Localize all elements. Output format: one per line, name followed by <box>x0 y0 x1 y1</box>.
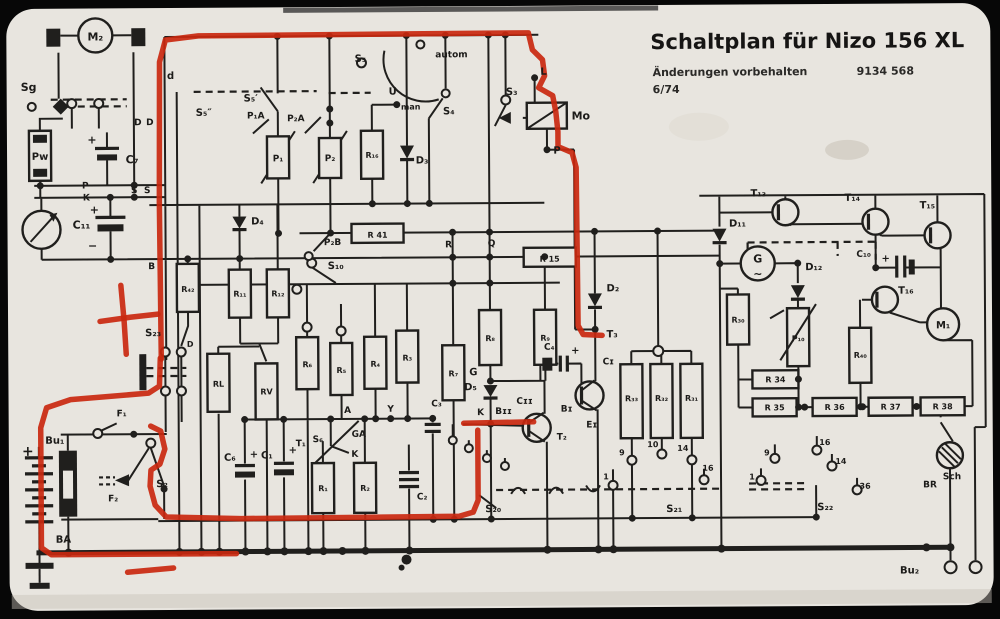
schematic-label: + <box>90 203 99 216</box>
schematic-label: R <box>445 240 452 250</box>
schematic-label: S <box>131 186 138 196</box>
schematic-label: S₆ <box>313 435 324 445</box>
schematic-label: BR <box>923 480 937 490</box>
schematic-label: F₁ <box>117 409 127 419</box>
schematic-label: S₁₀ <box>328 261 344 272</box>
schematic-label: R₄ <box>370 360 380 369</box>
schematic-label: R 36 <box>825 403 846 412</box>
schematic-label: R 35 <box>765 403 786 412</box>
scanned-schematic-photo: Schaltplan für Nizo 156 XL Änderungen vo… <box>0 0 1000 619</box>
schematic-label: C₁ <box>261 450 273 461</box>
schematic-label: F₂ <box>108 494 118 504</box>
schematic-label: RL <box>213 380 224 389</box>
schematic-label: R₃ <box>402 354 412 363</box>
schematic-label: C₇ <box>126 153 139 166</box>
schematic-label: T₁₄ <box>844 193 860 204</box>
schematic-label: man <box>401 102 421 111</box>
schematic-label: R₁₂ <box>271 289 285 298</box>
schematic-label: T₁₅ <box>920 200 936 211</box>
schematic-label: C₁₁ <box>73 218 91 231</box>
schematic-label: U <box>389 87 397 98</box>
schematic-label: R₄₂ <box>181 285 195 294</box>
schematic-canvas: Schaltplan für Nizo 156 XL Änderungen vo… <box>0 0 1000 619</box>
schematic-label: T₁ <box>296 439 306 449</box>
schematic-label: R₈ <box>485 334 495 343</box>
schematic-label: + <box>571 346 579 357</box>
schematic-label: R₃₃ <box>625 394 639 403</box>
schematic-label: L <box>540 67 547 78</box>
schematic-label: S₂₃ <box>145 328 161 339</box>
schematic-label: R₆ <box>302 360 312 369</box>
schematic-label: D <box>187 340 194 349</box>
schematic-label: S <box>144 186 151 196</box>
schematic-label: 14 <box>677 444 689 453</box>
transistor-T15 <box>924 222 950 248</box>
schematic-label: D₃ <box>416 155 429 166</box>
schematic-label: S₂₂ <box>817 502 833 513</box>
schematic-label: M₁ <box>936 320 950 331</box>
schematic-label: C₆ <box>224 453 236 464</box>
schematic-subtitle: Änderungen vorbehalten <box>653 64 808 79</box>
paper-sheet: Schaltplan für Nizo 156 XL Änderungen vo… <box>6 3 994 611</box>
schematic-label: S₂₀ <box>485 504 501 515</box>
schematic-label: D₅ <box>464 382 477 393</box>
schematic-label: C₃ <box>431 399 442 409</box>
schematic-label: S₂₁ <box>666 504 682 515</box>
transistor-T14 <box>862 209 888 235</box>
schematic-label: S₃ <box>506 87 518 98</box>
schematic-label: RV <box>260 387 273 396</box>
schematic-label: R₄₀ <box>854 351 868 360</box>
schematic-label: T₁₆ <box>898 285 914 296</box>
schematic-label: P₁ <box>273 154 284 164</box>
schematic-label: Bɪɪ <box>495 407 512 417</box>
schematic-label: K <box>351 450 359 460</box>
schematic-label: 10 <box>647 440 659 449</box>
transist-T13 <box>772 199 798 225</box>
schematic-label: R₁₁ <box>233 290 247 299</box>
schematic-label: 1 <box>603 472 609 481</box>
schematic-label: P₂ <box>325 154 336 164</box>
schematic-label: R₁₆ <box>365 151 379 160</box>
schematic-label: A <box>344 406 351 416</box>
schematic-label: S₄ <box>443 106 455 117</box>
schematic-label: 1 <box>749 472 755 481</box>
schematic-label: R₃₂ <box>655 394 669 403</box>
schematic-label: GA <box>352 430 366 440</box>
schematic-title: Schaltplan für Nizo 156 XL <box>650 28 964 54</box>
schematic-label: D₄ <box>251 216 264 227</box>
schematic-label: R₃₀ <box>731 316 745 325</box>
schematic-label: K <box>477 408 485 418</box>
schematic-label: R₅ <box>337 366 347 375</box>
schematic-label: D₁₁ <box>729 218 746 229</box>
schematic-label: G <box>753 252 762 265</box>
schematic-label: Bu₂ <box>900 565 919 576</box>
schematic-label: R₂ <box>360 484 370 493</box>
schematic-label: 36 <box>859 482 871 491</box>
schematic-label: G <box>469 367 477 378</box>
schematic-label: P <box>553 146 560 157</box>
schematic-label: Sg <box>21 81 37 94</box>
schematic-label: Mo <box>572 109 591 122</box>
capacitor-plate-S23 <box>139 354 146 390</box>
schematic-label: BA <box>56 535 72 546</box>
schematic-label: S₅ <box>355 54 367 65</box>
schematic-label: Eɪ <box>586 420 597 430</box>
schematic-label: + <box>250 449 258 460</box>
schematic-label: P <box>82 182 89 192</box>
schematic-label: 16 <box>702 464 714 473</box>
schematic-label: T₂ <box>557 433 567 443</box>
schematic-label: Cɪ <box>603 357 615 367</box>
schematic-label: d <box>167 71 174 82</box>
schematic-label: + <box>881 254 889 265</box>
schematic-label: Bu₁ <box>45 436 64 447</box>
schematic-label: T₁₃ <box>750 188 766 199</box>
schematic-label: ~ <box>753 267 762 280</box>
schematic-label: 14 <box>835 457 847 466</box>
schematic-label: − <box>88 239 97 252</box>
schematic-label: autom <box>435 50 467 60</box>
schematic-label: M₂ <box>87 30 103 43</box>
schematic-label: T₃ <box>607 329 618 340</box>
schematic-label: P₂B <box>324 238 342 248</box>
schematic-label: R₉ <box>540 334 550 343</box>
schematic-label: Bɪ <box>561 405 573 415</box>
scan-edge-smear <box>283 8 658 10</box>
schematic-label: Cɪɪ <box>516 397 533 407</box>
red-annotation-path <box>464 422 534 423</box>
schematic-label: + <box>87 133 96 146</box>
schematic-label: Sch <box>943 472 961 482</box>
schematic-label: P₁A <box>247 111 265 121</box>
schematic-label: D₂ <box>606 283 619 294</box>
schematic-label: S₂ <box>156 479 168 490</box>
schematic-label: R 41 <box>367 231 388 240</box>
schematic-label: R₁ <box>318 484 328 493</box>
schematic-label: C₁₀ <box>856 250 871 260</box>
schematic-label: B <box>148 262 155 272</box>
schematic-label: R₇ <box>449 369 459 378</box>
schematic-label: D <box>146 118 154 128</box>
schematic-label: D₁₂ <box>805 262 822 273</box>
schematic-label: Q <box>488 239 496 249</box>
schematic-label: R 34 <box>765 375 786 384</box>
schematic-part-number: 9134 568 <box>857 64 914 77</box>
schematic-label: R 15 <box>540 255 561 264</box>
schematic-label: C₂ <box>417 492 428 502</box>
schematic-label: P₁₀ <box>792 334 805 343</box>
schematic-label: 9 <box>619 448 625 457</box>
schematic-label: K <box>83 193 91 203</box>
schematic-label: 9 <box>764 448 770 457</box>
schematic-label: S₅″ <box>196 108 213 119</box>
schematic-label: P₂A <box>287 114 305 124</box>
schematic-label: R 37 <box>881 403 901 412</box>
schematic-label: Pw <box>32 152 49 163</box>
schematic-date: 6/74 <box>653 83 680 96</box>
schematic-label: D <box>134 118 142 128</box>
schematic-label: R 38 <box>933 402 954 411</box>
schematic-label: S₅′ <box>244 93 259 104</box>
schematic-label: C₄ <box>544 343 555 353</box>
schematic-label: + <box>22 444 34 460</box>
schematic-label: R₃₁ <box>685 394 699 403</box>
schematic-label: 16 <box>819 438 831 447</box>
schematic-label: Y <box>386 405 394 415</box>
